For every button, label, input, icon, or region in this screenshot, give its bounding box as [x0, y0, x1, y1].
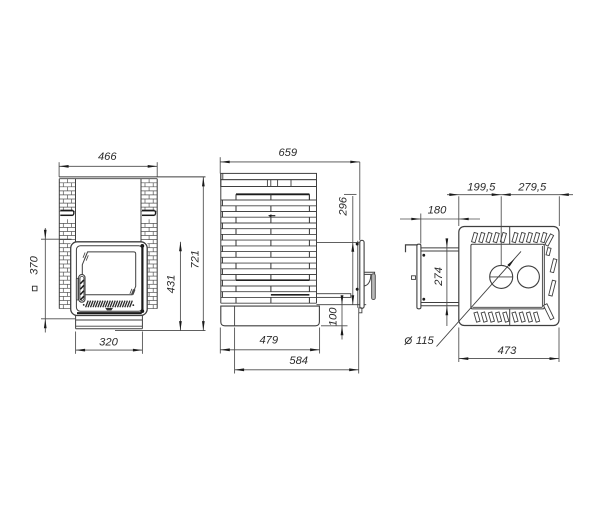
svg-text:466: 466 [98, 151, 117, 163]
svg-text:100: 100 [328, 307, 340, 326]
svg-text:431: 431 [165, 275, 177, 294]
svg-text:180: 180 [428, 205, 447, 217]
svg-text:370: 370 [29, 255, 41, 274]
svg-text:473: 473 [498, 345, 517, 357]
svg-text:721: 721 [190, 250, 202, 269]
svg-text:296: 296 [338, 196, 350, 216]
svg-text:279,5: 279,5 [517, 181, 547, 193]
svg-text:115: 115 [416, 335, 435, 347]
svg-text:659: 659 [278, 147, 297, 159]
svg-text:584: 584 [289, 355, 308, 367]
svg-text:479: 479 [259, 335, 278, 347]
svg-text:274: 274 [433, 267, 445, 287]
svg-text:320: 320 [99, 336, 118, 348]
svg-text:199,5: 199,5 [467, 181, 496, 193]
